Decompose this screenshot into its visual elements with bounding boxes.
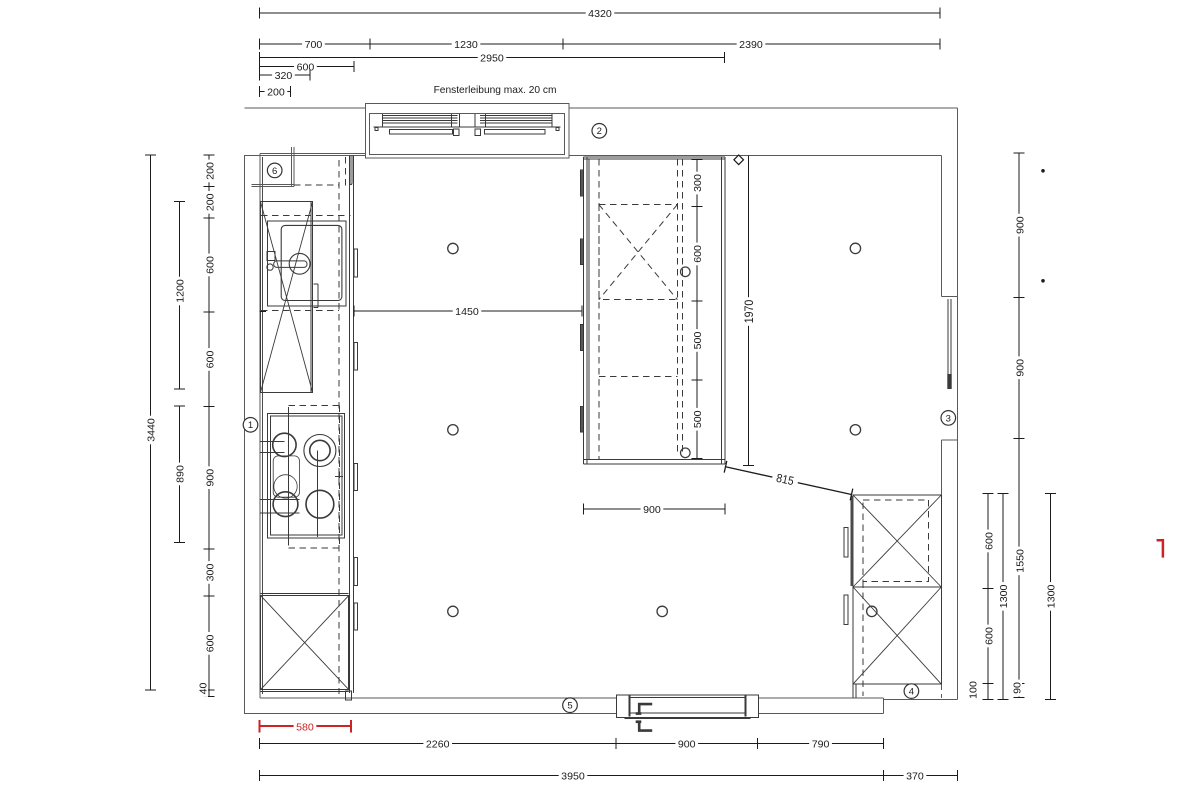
svg-text:700: 700	[305, 39, 323, 51]
svg-text:600: 600	[983, 532, 995, 550]
svg-text:1: 1	[248, 420, 253, 431]
svg-text:40: 40	[198, 682, 210, 694]
svg-text:4320: 4320	[588, 8, 612, 20]
svg-text:370: 370	[906, 771, 924, 783]
svg-text:1300: 1300	[1046, 584, 1058, 608]
svg-text:2390: 2390	[739, 39, 763, 51]
svg-text:900: 900	[204, 469, 216, 487]
svg-text:790: 790	[812, 739, 830, 751]
svg-text:320: 320	[275, 70, 293, 82]
svg-text:4: 4	[909, 687, 914, 698]
svg-text:1970: 1970	[742, 299, 756, 323]
svg-text:200: 200	[204, 193, 216, 211]
svg-text:200: 200	[267, 87, 285, 99]
svg-text:500: 500	[692, 332, 704, 350]
svg-text:300: 300	[204, 564, 216, 582]
svg-text:Fensterleibung max. 20 cm: Fensterleibung max. 20 cm	[434, 85, 557, 96]
svg-text:100: 100	[968, 681, 980, 699]
svg-text:1450: 1450	[455, 306, 479, 318]
svg-text:1200: 1200	[175, 279, 187, 303]
svg-text:600: 600	[204, 256, 216, 274]
svg-text:2: 2	[597, 126, 602, 137]
svg-text:6: 6	[272, 166, 277, 177]
svg-text:5: 5	[567, 701, 572, 712]
svg-text:900: 900	[1014, 216, 1026, 234]
svg-text:900: 900	[678, 739, 696, 751]
svg-text:900: 900	[643, 504, 661, 516]
svg-text:600: 600	[204, 351, 216, 369]
svg-text:600: 600	[692, 245, 704, 263]
svg-text:200: 200	[204, 162, 216, 180]
svg-text:2950: 2950	[480, 53, 504, 65]
svg-text:600: 600	[204, 634, 216, 652]
svg-text:1230: 1230	[454, 39, 478, 51]
svg-text:3950: 3950	[561, 771, 585, 783]
svg-text:580: 580	[296, 721, 314, 733]
svg-text:3: 3	[946, 413, 951, 424]
svg-text:500: 500	[692, 410, 704, 428]
svg-text:600: 600	[983, 627, 995, 645]
svg-text:900: 900	[1014, 359, 1026, 377]
svg-text:600: 600	[297, 62, 315, 74]
svg-text:90: 90	[1012, 682, 1024, 694]
svg-text:3440: 3440	[146, 418, 158, 442]
svg-text:300: 300	[692, 174, 704, 192]
svg-text:1300: 1300	[998, 584, 1010, 608]
svg-text:1550: 1550	[1014, 549, 1026, 573]
svg-text:2260: 2260	[426, 739, 450, 751]
svg-text:890: 890	[175, 465, 187, 483]
